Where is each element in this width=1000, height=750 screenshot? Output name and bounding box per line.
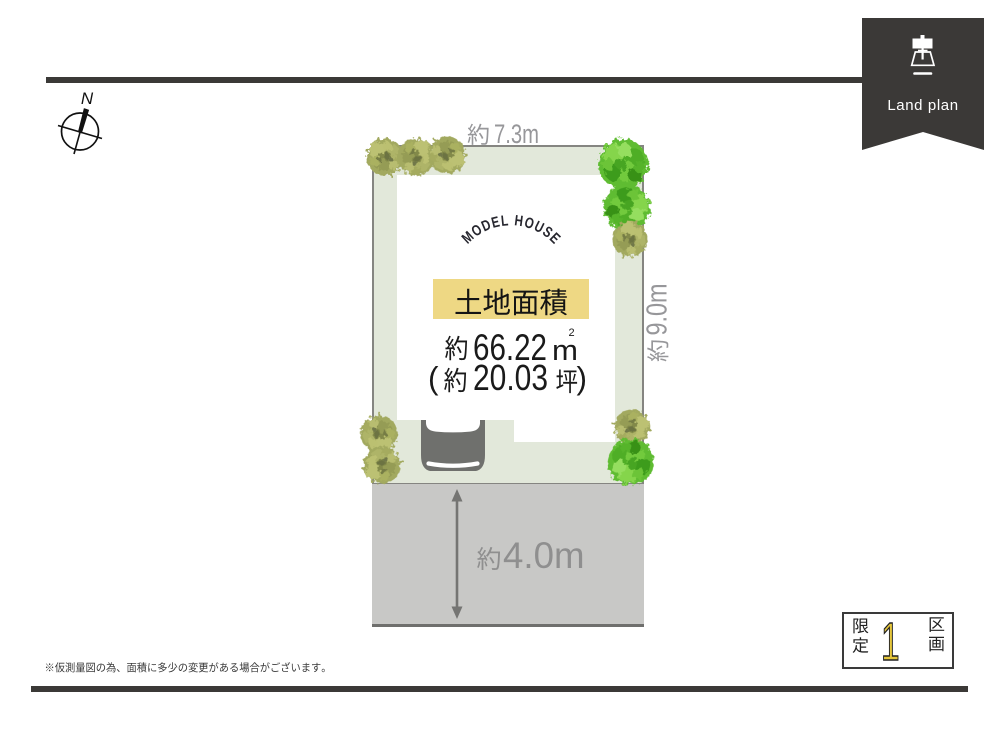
svg-text:4.0m: 4.0m [503, 535, 585, 576]
svg-text:7.3m: 7.3m [494, 119, 539, 149]
svg-text:(: ( [428, 360, 439, 396]
svg-text:): ) [577, 360, 588, 396]
svg-text:9.0m: 9.0m [642, 284, 674, 336]
svg-text:m: m [552, 335, 578, 367]
svg-text:2: 2 [569, 327, 575, 339]
svg-text:20.03: 20.03 [473, 357, 548, 398]
svg-text:H: H [514, 212, 524, 230]
svg-text:L: L [500, 212, 509, 229]
